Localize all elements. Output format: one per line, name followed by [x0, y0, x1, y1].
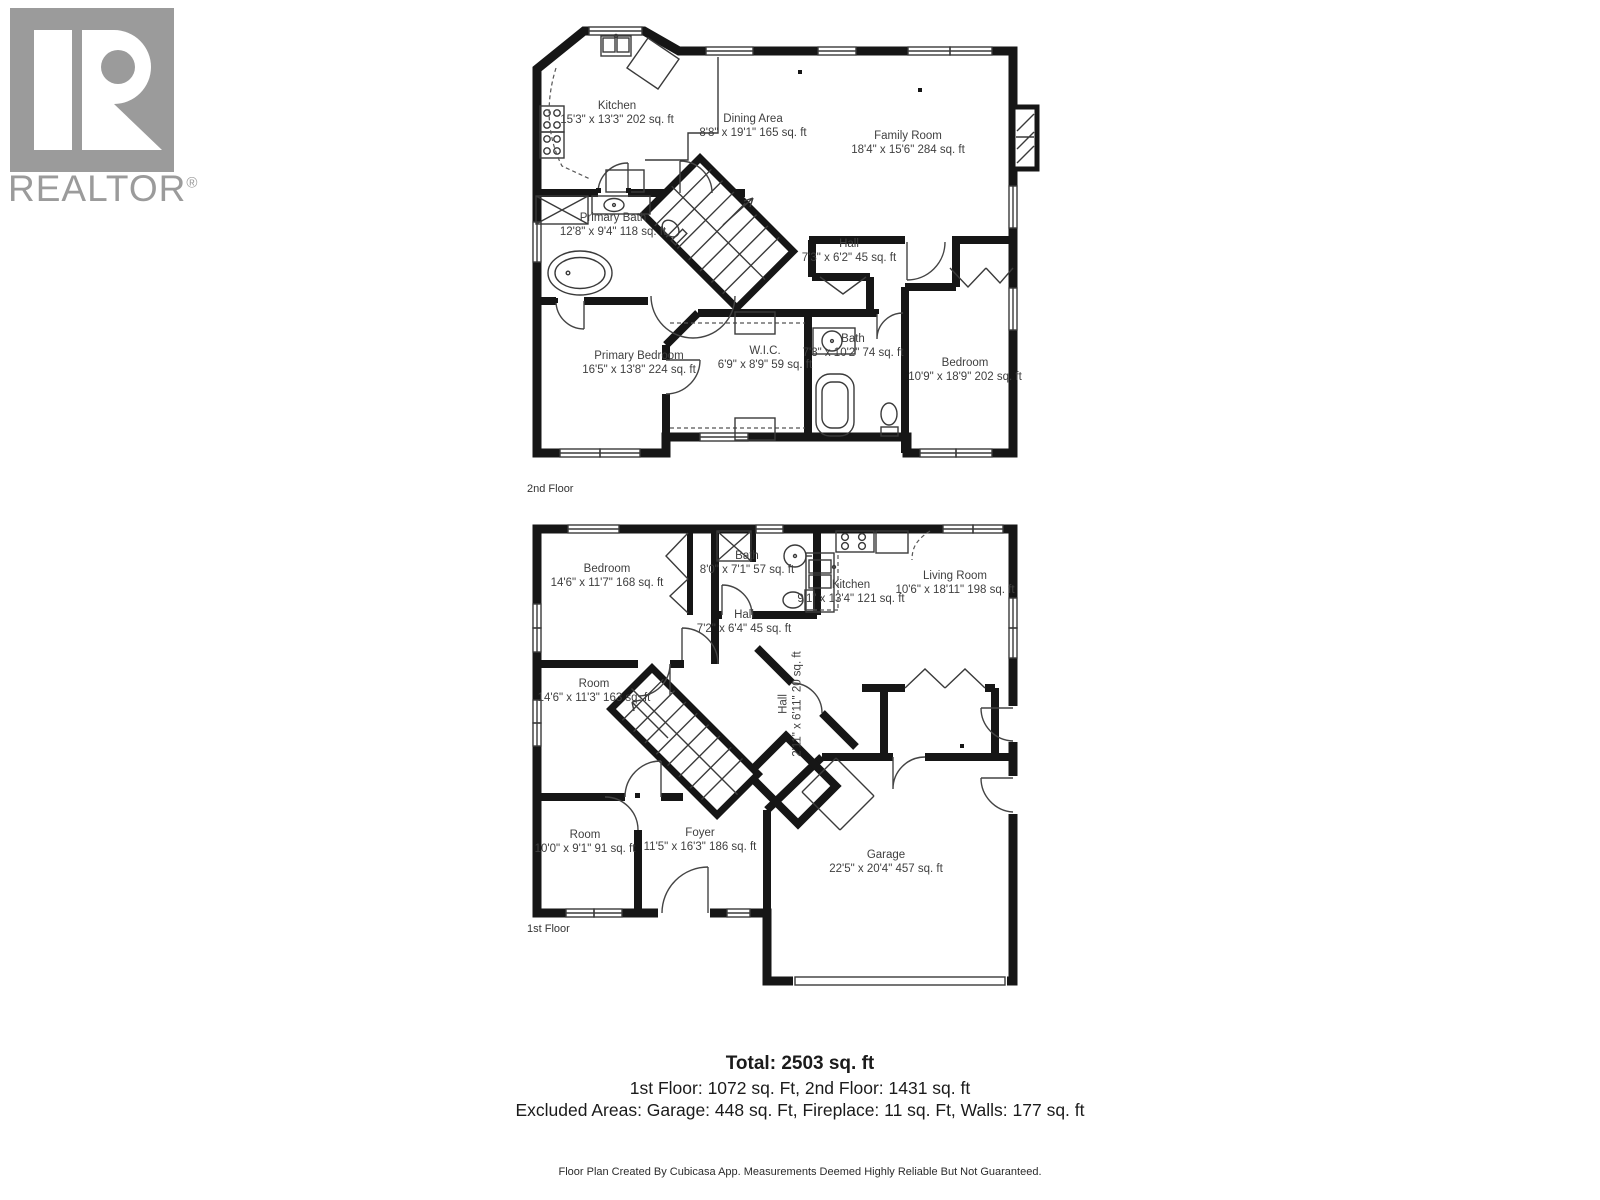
room-label-wic: W.I.C.6'9" x 8'9" 59 sq. ft — [718, 345, 812, 372]
room-label-room-1: Room14'6" x 11'3" 163 sq. ft — [538, 678, 651, 705]
fireplace — [1013, 107, 1037, 169]
room-label-primary-bedroom: Primary Bedroom16'5" x 13'8" 224 sq. ft — [582, 350, 696, 377]
room-label-kitchen-2nd: Kitchen15'3" x 13'3" 202 sq. ft — [560, 100, 674, 127]
room-label-hall-1st: Hall7'2" x 6'4" 45 sq. ft — [697, 609, 791, 636]
footer-disclaimer: Floor Plan Created By Cubicasa App. Meas… — [0, 1166, 1600, 1178]
caption-1st-floor: 1st Floor — [527, 923, 570, 935]
room-label-bath-1st: Bath8'0" x 7'1" 57 sq. ft — [700, 550, 794, 577]
room-label-dining-area: Dining Area8'8" x 19'1" 165 sq. ft — [699, 113, 806, 140]
summary-total: Total: 2503 sq. ft — [0, 1053, 1600, 1075]
room-label-foyer: Foyer11'5" x 16'3" 186 sq. ft — [644, 827, 757, 854]
room-label-bedroom-1st: Bedroom14'6" x 11'7" 168 sq. ft — [551, 563, 664, 590]
room-label-kitchen-1st: Kitchen9'1" x 13'4" 121 sq. ft — [797, 579, 904, 606]
summary-excluded: Excluded Areas: Garage: 448 sq. Ft, Fire… — [0, 1100, 1600, 1121]
room-label-hall-small: Hall2'11" x 6'11" 20 sq. ft — [778, 651, 805, 756]
caption-2nd-floor: 2nd Floor — [527, 483, 573, 495]
floorplan-2nd-floor — [531, 25, 1038, 460]
summary-floors: 1st Floor: 1072 sq. Ft, 2nd Floor: 1431 … — [0, 1078, 1600, 1099]
room-label-living-room: Living Room10'6" x 18'11" 198 sq. ft — [895, 570, 1014, 597]
room-label-primary-bath: Primary Bath12'8" x 9'4" 118 sq. ft — [560, 212, 666, 239]
room-label-bath-2nd: Bath7'3" x 10'2" 74 sq. ft — [803, 333, 904, 360]
floorplan-page: REALTOR® — [0, 0, 1600, 1200]
room-label-family-room: Family Room18'4" x 15'6" 284 sq. ft — [851, 130, 965, 157]
room-label-bedroom-2nd: Bedroom10'9" x 18'9" 202 sq. ft — [908, 357, 1022, 384]
room-label-garage: Garage22'5" x 20'4" 457 sq. ft — [829, 849, 943, 876]
room-label-hall-2nd: Hall7'3" x 6'2" 45 sq. ft — [802, 238, 896, 265]
room-label-room-2: Room10'0" x 9'1" 91 sq. ft — [535, 829, 636, 856]
